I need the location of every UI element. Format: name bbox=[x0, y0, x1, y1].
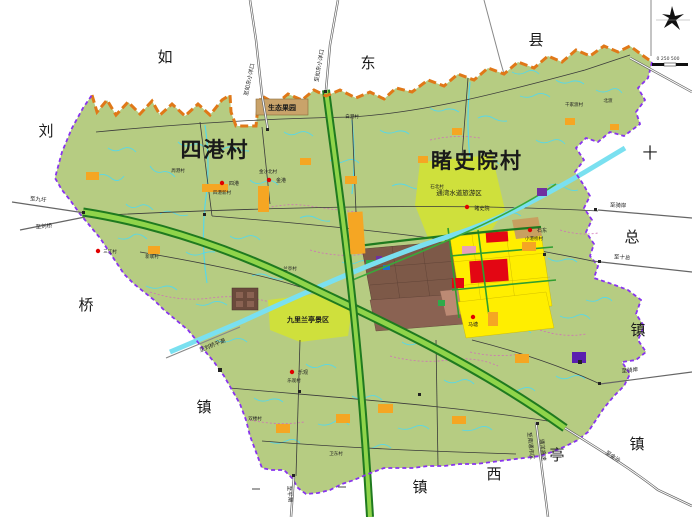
neighbor-label: 总 bbox=[624, 228, 639, 246]
scale-text: 0 250 500 bbox=[657, 56, 680, 62]
neighbor-label: 十 bbox=[642, 144, 657, 162]
neighbor-label: 东 bbox=[360, 54, 375, 72]
map-canvas: 四港村 睹史院村 如 东 县 刘 十 总 桥 镇 镇 镇 西 亭 镇 生态果园 … bbox=[0, 0, 692, 517]
village-name-sigang: 四港村 bbox=[181, 138, 250, 162]
hamlet-label: 周港村 bbox=[171, 167, 185, 174]
neighbor-label: 西 bbox=[486, 465, 501, 483]
village-name-dushiyuan: 睹史院村 bbox=[431, 149, 523, 173]
area-label-lanting: 九里兰亭景区 bbox=[286, 315, 329, 324]
hamlet-label: 双楼村 bbox=[248, 415, 262, 422]
settlement-label: 金沙北村 bbox=[259, 168, 277, 175]
neighbor-label: 亭 bbox=[549, 446, 564, 464]
settlement-label: 三江村 bbox=[103, 248, 117, 255]
planning-map: 四港村 睹史院村 如 东 县 刘 十 总 桥 镇 镇 镇 西 亭 镇 生态果园 … bbox=[0, 0, 692, 517]
neighbor-label: 镇 bbox=[412, 478, 427, 496]
neighbor-label: 镇 bbox=[630, 321, 645, 339]
hamlet-label: 石北村 bbox=[430, 183, 444, 190]
hamlet-label: 卫东村 bbox=[329, 450, 343, 457]
settlement-label: 四港新村 bbox=[213, 189, 231, 196]
settlement-label: 石东 bbox=[537, 227, 547, 234]
settlement-label: 小港桥村 bbox=[525, 235, 543, 242]
neighbor-label: 刘 bbox=[38, 122, 53, 140]
neighbor-label: 镇 bbox=[196, 398, 211, 416]
neighbor-label: 桥 bbox=[78, 296, 93, 314]
settlement-label: 金港 bbox=[276, 177, 286, 184]
settlement-label: 乐观村 bbox=[287, 377, 301, 384]
hamlet-label: 兰亭村 bbox=[283, 265, 297, 272]
settlement-label: 四港 bbox=[229, 180, 239, 187]
hamlet-label: 白港村 bbox=[345, 113, 359, 120]
settlement-label: 睹史院 bbox=[474, 205, 489, 212]
hamlet-label: 千家渡村 bbox=[565, 101, 583, 108]
area-label-eco: 生态果园 bbox=[268, 103, 296, 112]
settlement-label: 乐观 bbox=[298, 369, 308, 376]
brown-farm-square bbox=[232, 288, 258, 310]
neighbor-label: 如 bbox=[157, 48, 172, 66]
hamlet-label: 北渡 bbox=[604, 97, 613, 104]
neighbor-label: 镇 bbox=[629, 435, 644, 453]
hamlet-label: 新联村 bbox=[145, 253, 159, 260]
settlement-label: 马塘 bbox=[468, 321, 478, 328]
purple-site-1 bbox=[537, 188, 547, 196]
neighbor-label: 县 bbox=[528, 31, 543, 49]
